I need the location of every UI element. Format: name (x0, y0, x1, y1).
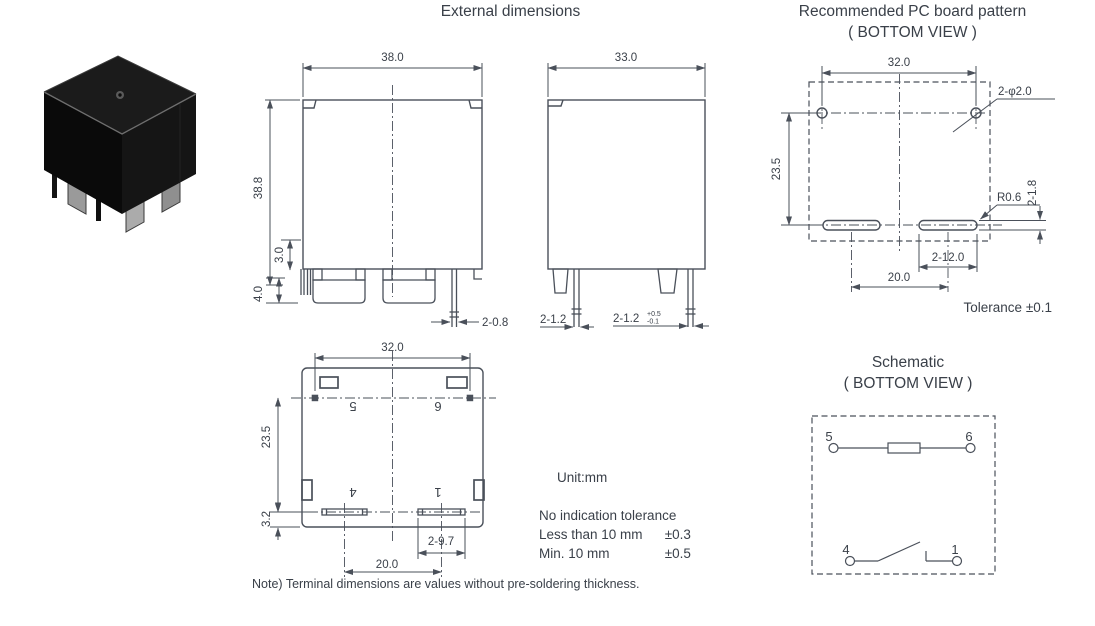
schematic-pin6-label: 6 (965, 429, 972, 444)
coil-symbol (888, 443, 920, 453)
bottom-pin6-label: 6 (434, 399, 441, 414)
pcb-slot-length-dim: 2-12.0 (932, 252, 965, 264)
front-dimension-lines (265, 63, 482, 322)
tolerance-row2-label: Min. 10 mm (539, 544, 661, 563)
pcb-pitch-dim: 20.0 (888, 272, 910, 284)
pcb-dimension-lines (781, 66, 1055, 287)
pcb-slot-width-dim: 2-1.8 (1027, 180, 1039, 206)
pcb-holes-dim: 2-φ2.0 (998, 86, 1032, 98)
bottom-tab-dim: 2-9.7 (428, 536, 454, 548)
tolerance-note-row1: Less than 10 mm ±0.3 (539, 525, 691, 544)
tolerance-note-title: No indication tolerance (539, 506, 691, 525)
side-dimension-lines (540, 63, 709, 327)
tolerance-row2-value: ±0.5 (665, 546, 691, 561)
side-pin-right-tol-plus: +0.5 (647, 311, 661, 318)
bottom-view-drawing: 32.0 23.5 3.2 2-9.7 20.0 5 6 4 1 (253, 337, 535, 580)
bottom-pin5-label: 5 (349, 399, 356, 414)
side-pin-left-dim: 2-1.2 (540, 314, 566, 326)
schematic-title-line1: Schematic (810, 352, 1006, 373)
front-view-drawing: 38.0 38.8 3.0 4.0 2-0.8 (253, 45, 528, 337)
pcb-pattern-drawing: 32.0 23.5 2-φ2.0 R0.6 2-1.8 2-12.0 20.0 (768, 48, 1095, 323)
external-dimensions-title: External dimensions (378, 1, 643, 22)
relay-product-photo (30, 42, 208, 237)
schematic-pin4-label: 4 (842, 542, 849, 557)
side-pin-right-dim: 2-1.2 (613, 313, 639, 325)
side-body-outline (548, 100, 705, 269)
bottom-height-dim: 23.5 (261, 426, 273, 448)
schematic-title-line2: ( BOTTOM VIEW ) (810, 373, 1006, 394)
front-terminal-length-dim: 4.0 (253, 286, 265, 302)
terminal-footnote: Note) Terminal dimensions are values wit… (252, 577, 639, 591)
bottom-pin4-label: 4 (349, 485, 356, 500)
tolerance-note-row2: Min. 10 mm ±0.5 (539, 544, 691, 563)
front-terminals (301, 269, 482, 327)
unit-note: Unit:mm (557, 470, 607, 485)
tolerance-row1-label: Less than 10 mm (539, 525, 661, 544)
tolerance-row1-value: ±0.3 (665, 527, 691, 542)
pcb-height-dim: 23.5 (771, 158, 783, 180)
front-standoff-dim: 3.0 (274, 247, 286, 263)
bottom-body-outline (302, 368, 484, 527)
pcb-radius-dim: R0.6 (997, 192, 1021, 204)
bottom-pin1-label: 1 (434, 485, 441, 500)
front-pin-dim: 2-0.8 (482, 317, 508, 329)
pcb-width-dim: 32.0 (888, 57, 910, 69)
front-height-dim: 38.8 (253, 177, 265, 199)
side-pin-right-tol-minus: -0.1 (647, 319, 659, 326)
schematic-coil-circuit (829, 443, 975, 453)
schematic-title: Schematic ( BOTTOM VIEW ) (810, 352, 1006, 394)
front-width-dim: 38.0 (381, 52, 403, 64)
side-width-dim: 33.0 (615, 52, 637, 64)
bottom-tab-offset-dim: 3.2 (261, 511, 273, 527)
schematic-drawing: 5 6 4 1 (800, 408, 1095, 593)
pcb-title-line1: Recommended PC board pattern (765, 1, 1060, 22)
pcb-pattern-title: Recommended PC board pattern ( BOTTOM VI… (765, 1, 1060, 43)
pcb-title-line2: ( BOTTOM VIEW ) (765, 22, 1060, 43)
datasheet-page: External dimensions Recommended PC board… (0, 0, 1095, 626)
switch-blade (878, 542, 920, 561)
tolerance-note-block: No indication tolerance Less than 10 mm … (539, 506, 691, 563)
side-view-drawing: 33.0 2-1.2 2-1.2 +0.5 -0.1 (535, 45, 735, 337)
schematic-pin1-label: 1 (951, 542, 958, 557)
schematic-contact-circuit (846, 542, 962, 566)
bottom-pitch-dim: 20.0 (376, 559, 398, 571)
schematic-pin5-label: 5 (825, 429, 832, 444)
bottom-width-dim: 32.0 (381, 342, 403, 354)
pcb-tolerance-note: Tolerance ±0.1 (890, 300, 1052, 315)
pcb-centerlines (813, 74, 1002, 292)
